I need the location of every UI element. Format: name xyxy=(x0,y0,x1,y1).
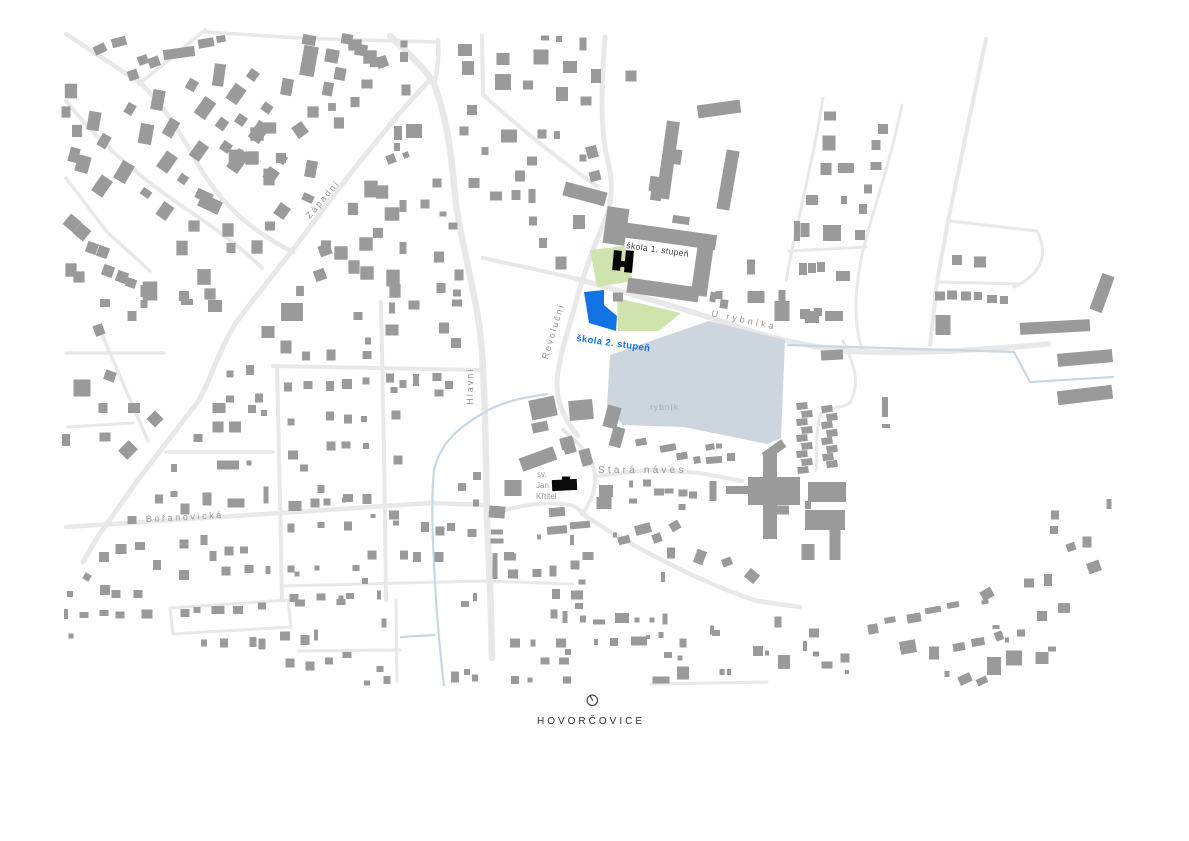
svg-text:rybník: rybník xyxy=(650,402,679,412)
svg-text:Hlavní: Hlavní xyxy=(465,367,475,405)
svg-text:HOVORČOVICE: HOVORČOVICE xyxy=(537,714,645,727)
svg-text:Stará náves: Stará náves xyxy=(598,465,687,476)
